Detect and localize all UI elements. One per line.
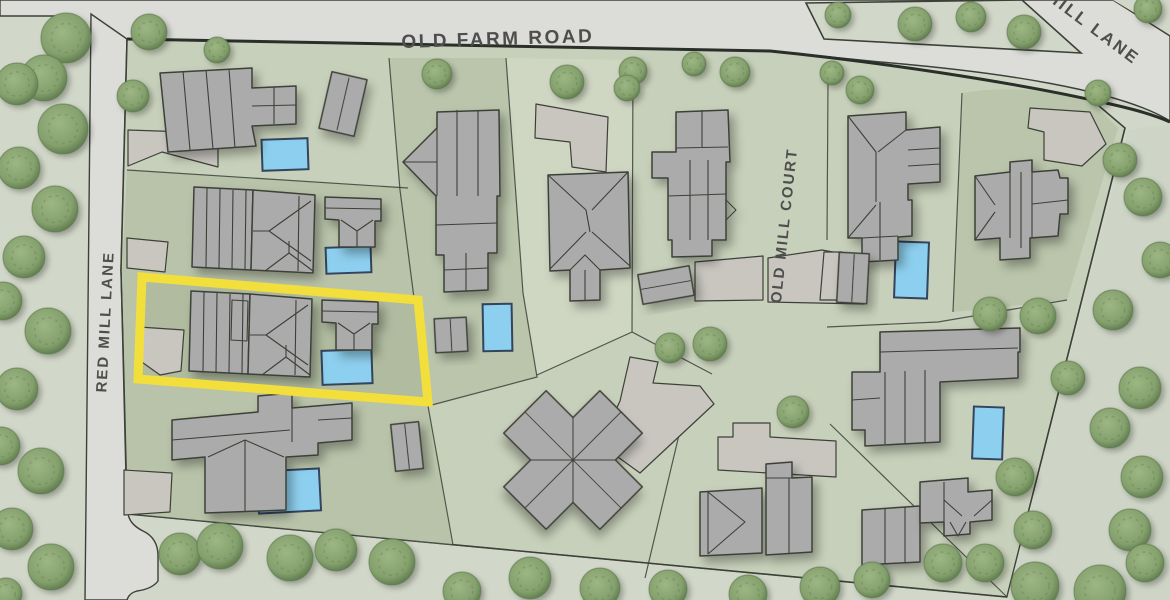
pool: [261, 138, 308, 171]
tree: [267, 535, 313, 581]
pool: [894, 241, 929, 298]
tree: [898, 7, 932, 41]
tree: [1124, 178, 1162, 216]
tree: [655, 333, 685, 363]
tree: [131, 14, 167, 50]
tree: [1090, 408, 1130, 448]
tree: [973, 297, 1007, 331]
pool: [321, 349, 372, 385]
tree: [509, 557, 551, 599]
building-shed-mid: [434, 317, 468, 353]
building-house-highlighted: [189, 291, 312, 377]
tree: [720, 57, 750, 87]
tree: [25, 308, 71, 354]
tree: [1007, 15, 1041, 49]
pool: [326, 246, 372, 274]
tree: [422, 59, 452, 89]
tree: [18, 448, 64, 494]
map-canvas: OLD FARM ROAD RED MILL LANE OLD MILL COU…: [0, 0, 1170, 600]
tree: [0, 63, 38, 105]
tree: [1121, 456, 1163, 498]
tree: [1103, 143, 1137, 177]
tree: [1119, 367, 1161, 409]
tree: [1134, 0, 1162, 23]
tree: [117, 80, 149, 112]
driveway: [124, 470, 172, 515]
building-garage-ne: [837, 252, 870, 304]
tree: [1014, 511, 1052, 549]
tree: [315, 529, 357, 571]
tree: [0, 368, 38, 410]
tree: [1020, 298, 1056, 334]
parcel-map: OLD FARM ROAD RED MILL LANE OLD MILL COU…: [0, 0, 1170, 600]
tree: [846, 76, 874, 104]
tree: [3, 236, 45, 278]
building-garage-sw: [391, 422, 424, 472]
tree: [28, 544, 74, 590]
tree: [854, 562, 890, 598]
tree: [996, 458, 1034, 496]
tree: [924, 544, 962, 582]
tree: [614, 75, 640, 101]
building-house-row2: [192, 187, 315, 273]
tree: [693, 327, 727, 361]
tree: [0, 147, 40, 189]
tree: [956, 2, 986, 32]
tree: [682, 52, 706, 76]
tree: [800, 567, 840, 600]
tree: [1093, 290, 1133, 330]
tree: [966, 544, 1004, 582]
tree: [1085, 80, 1111, 106]
pool: [972, 406, 1004, 459]
tree: [38, 104, 88, 154]
tree: [32, 186, 78, 232]
driveway: [127, 238, 168, 272]
tree: [777, 396, 809, 428]
tree: [550, 65, 584, 99]
pool: [483, 304, 513, 351]
tree: [159, 533, 201, 575]
tree: [820, 61, 844, 85]
driveway: [695, 256, 763, 301]
tree: [197, 523, 243, 569]
tree: [825, 2, 851, 28]
tree: [369, 539, 415, 585]
tree: [204, 37, 230, 63]
tree: [1126, 544, 1164, 582]
tree: [1051, 361, 1085, 395]
building-house-south-small: [862, 506, 920, 565]
